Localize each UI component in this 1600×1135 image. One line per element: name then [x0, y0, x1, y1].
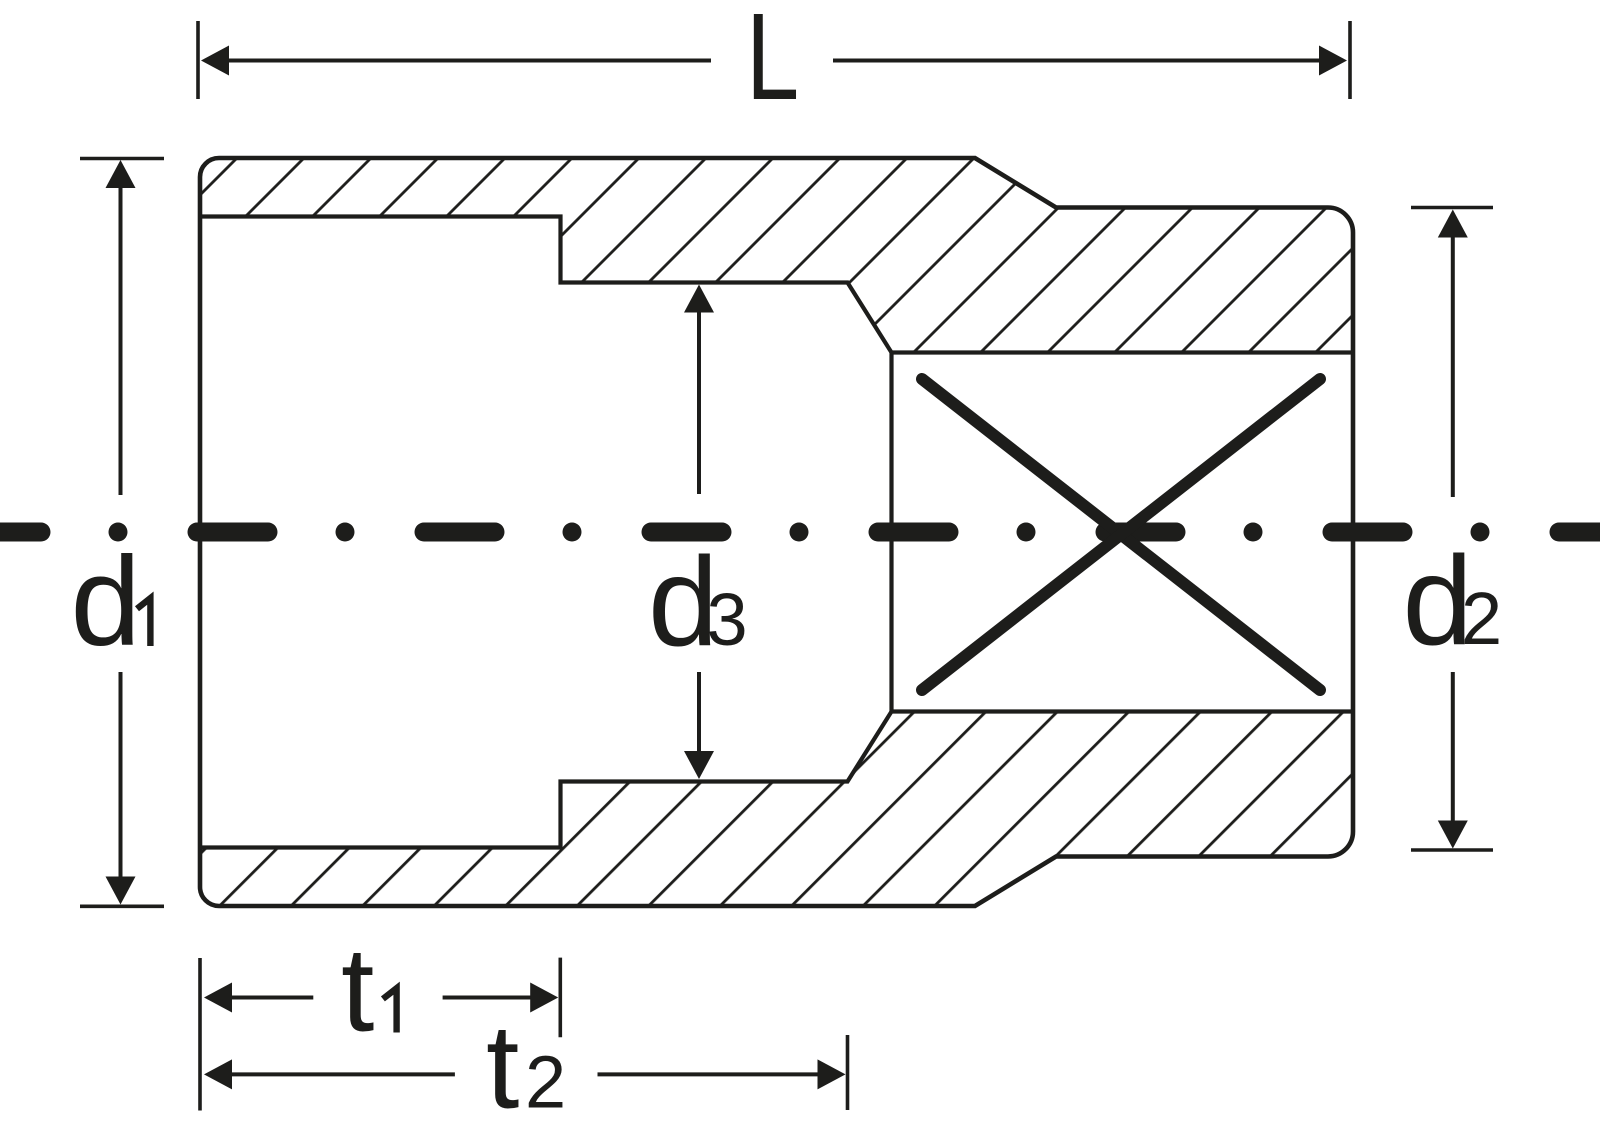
svg-text:2: 2	[525, 1041, 566, 1124]
svg-text:L: L	[746, 0, 799, 126]
svg-text:2: 2	[1461, 577, 1502, 660]
svg-text:t: t	[486, 1000, 519, 1134]
svg-text:d: d	[71, 530, 141, 672]
svg-text:t: t	[341, 923, 374, 1057]
svg-text:3: 3	[707, 578, 748, 661]
